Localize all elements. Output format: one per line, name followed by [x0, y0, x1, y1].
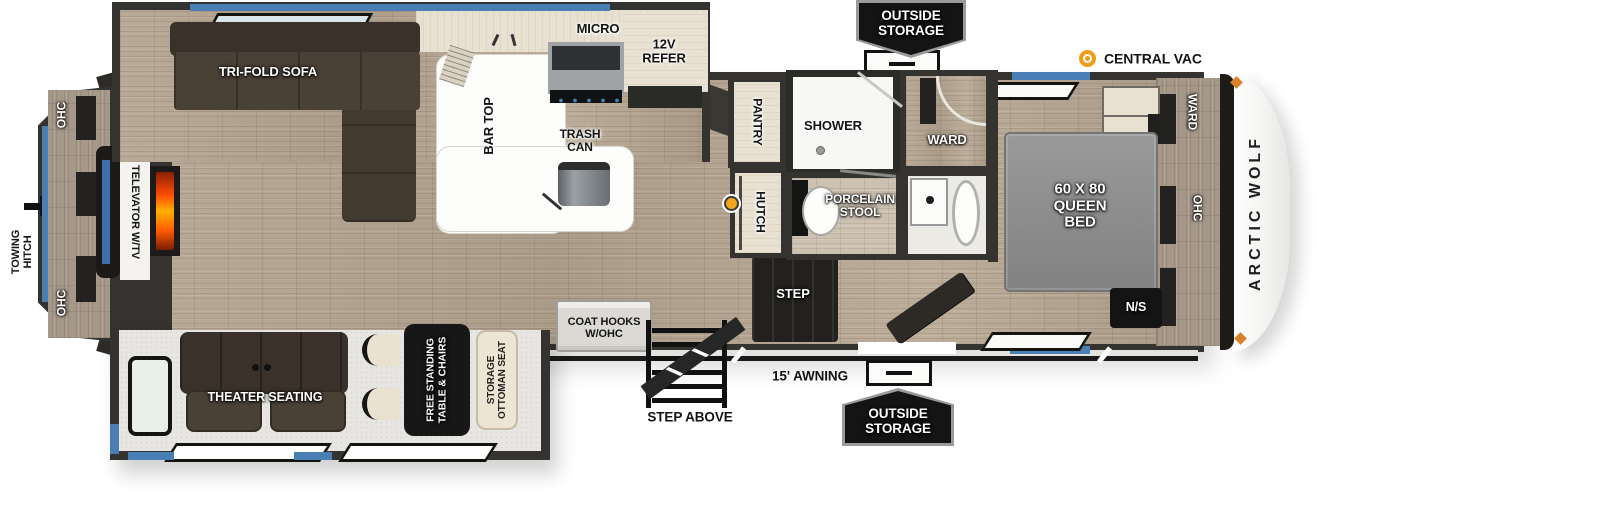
pantry-label: PANTRY: [750, 98, 763, 145]
bedroom-top-window-strip: [1012, 72, 1090, 80]
storage-door-bottom-icon: [866, 360, 932, 386]
rear-window-strip: [42, 126, 48, 302]
awning-label: 15' AWNING: [772, 370, 848, 385]
front-cap-rim: [1220, 74, 1234, 350]
rear-ohc-bottom-label: OHC: [55, 290, 68, 316]
stove-burner-band-icon: [550, 90, 622, 103]
hutch-label: HUTCH: [753, 191, 766, 233]
dinette-chair-icon: [362, 334, 400, 366]
slide-bottom-window-strip: [128, 452, 174, 460]
porcelain-stool-label: PORCELAIN STOOL: [825, 193, 895, 219]
rear-ohc-cabinet: [76, 96, 96, 140]
bedroom-ohc-cabinet: [1160, 186, 1176, 244]
bedroom-ohc-cabinet: [1160, 268, 1176, 326]
refrigerator-front: [628, 86, 702, 108]
sofa-seat: [174, 52, 420, 110]
bedroom-ohc-label: OHC: [1190, 195, 1203, 221]
hutch-edge-line: [739, 176, 742, 250]
slide-left-window-icon: [128, 356, 172, 436]
slide-window-strip: [190, 4, 610, 11]
televator-label: TELEVATOR W/TV: [129, 165, 141, 259]
queen-bed-label: 60 X 80 QUEEN BED: [1054, 181, 1107, 231]
refer-label: 12V REFER: [642, 38, 686, 67]
sofa-back: [170, 22, 420, 56]
dinette-chair-icon: [362, 388, 400, 420]
central-vac-label: CENTRAL VAC: [1104, 51, 1202, 66]
vac-outlet-icon: [724, 196, 739, 211]
tv-screen-icon: [102, 160, 110, 264]
shower-drain-icon: [816, 146, 825, 155]
shower-label: SHOWER: [804, 119, 862, 133]
slide-bottom-window-strip: [294, 452, 332, 460]
bar-top-label: BAR TOP: [482, 97, 496, 155]
step-label: STEP: [776, 287, 810, 301]
storage-ottoman-label: STORAGE OTTOMAN SEAT: [486, 341, 508, 419]
central-vac-icon: [1079, 50, 1096, 67]
cupholder-icon: [252, 364, 259, 371]
bedroom-bottom-window-icon: [980, 332, 1092, 351]
rear-ohc-top-label: OHC: [55, 102, 68, 128]
nightstand-label: N/S: [1126, 301, 1147, 315]
entry-door-opening: [858, 342, 956, 354]
rear-ohc-cabinet: [76, 256, 96, 302]
bedroom-ward-label: WARD: [1185, 94, 1198, 130]
towing-hitch-label: TOWING HITCH: [10, 230, 34, 274]
outside-storage-bottom-label: OUTSIDE STORAGE: [865, 407, 931, 437]
vanity-faucet-icon: [926, 196, 934, 204]
ward-room-label: WARD: [927, 133, 966, 147]
ward-rod-icon: [920, 78, 936, 124]
slide-left-window-strip: [110, 424, 119, 454]
theater-seating-label: THEATER SEATING: [208, 391, 323, 405]
cupholder-icon: [264, 364, 271, 371]
bedroom-ohc-cabinet: [1160, 94, 1176, 144]
fireplace-glow-icon: [156, 172, 174, 250]
trash-can-label: TRASH CAN: [560, 128, 601, 154]
coat-hooks-label: COAT HOOKS W/OHC: [568, 316, 641, 340]
vanity-bowl-icon: [952, 180, 980, 246]
micro-label: MICRO: [577, 22, 620, 36]
floorplan-canvas: OHC OHC TELEVATOR W/TV TOWING HITCH TRI-…: [0, 0, 1600, 505]
outside-storage-top-label: OUTSIDE STORAGE: [878, 9, 944, 39]
sofa-label: TRI-FOLD SOFA: [219, 65, 317, 79]
brand-label: ARCTIC WOLF: [1247, 135, 1265, 291]
step-above-label: STEP ABOVE: [647, 411, 732, 426]
entry-stairs-icon: [644, 318, 730, 412]
bath-bedroom-wall: [988, 70, 998, 262]
slide-bottom-window-icon: [338, 443, 498, 462]
rear-ohc-cabinet: [76, 172, 96, 216]
theater-seat-back: [180, 332, 348, 394]
stove-top-icon: [552, 46, 620, 70]
dinette-table-label: FREE STANDING TABLE & CHAIRS: [425, 337, 448, 424]
trash-can-icon: [558, 162, 610, 206]
